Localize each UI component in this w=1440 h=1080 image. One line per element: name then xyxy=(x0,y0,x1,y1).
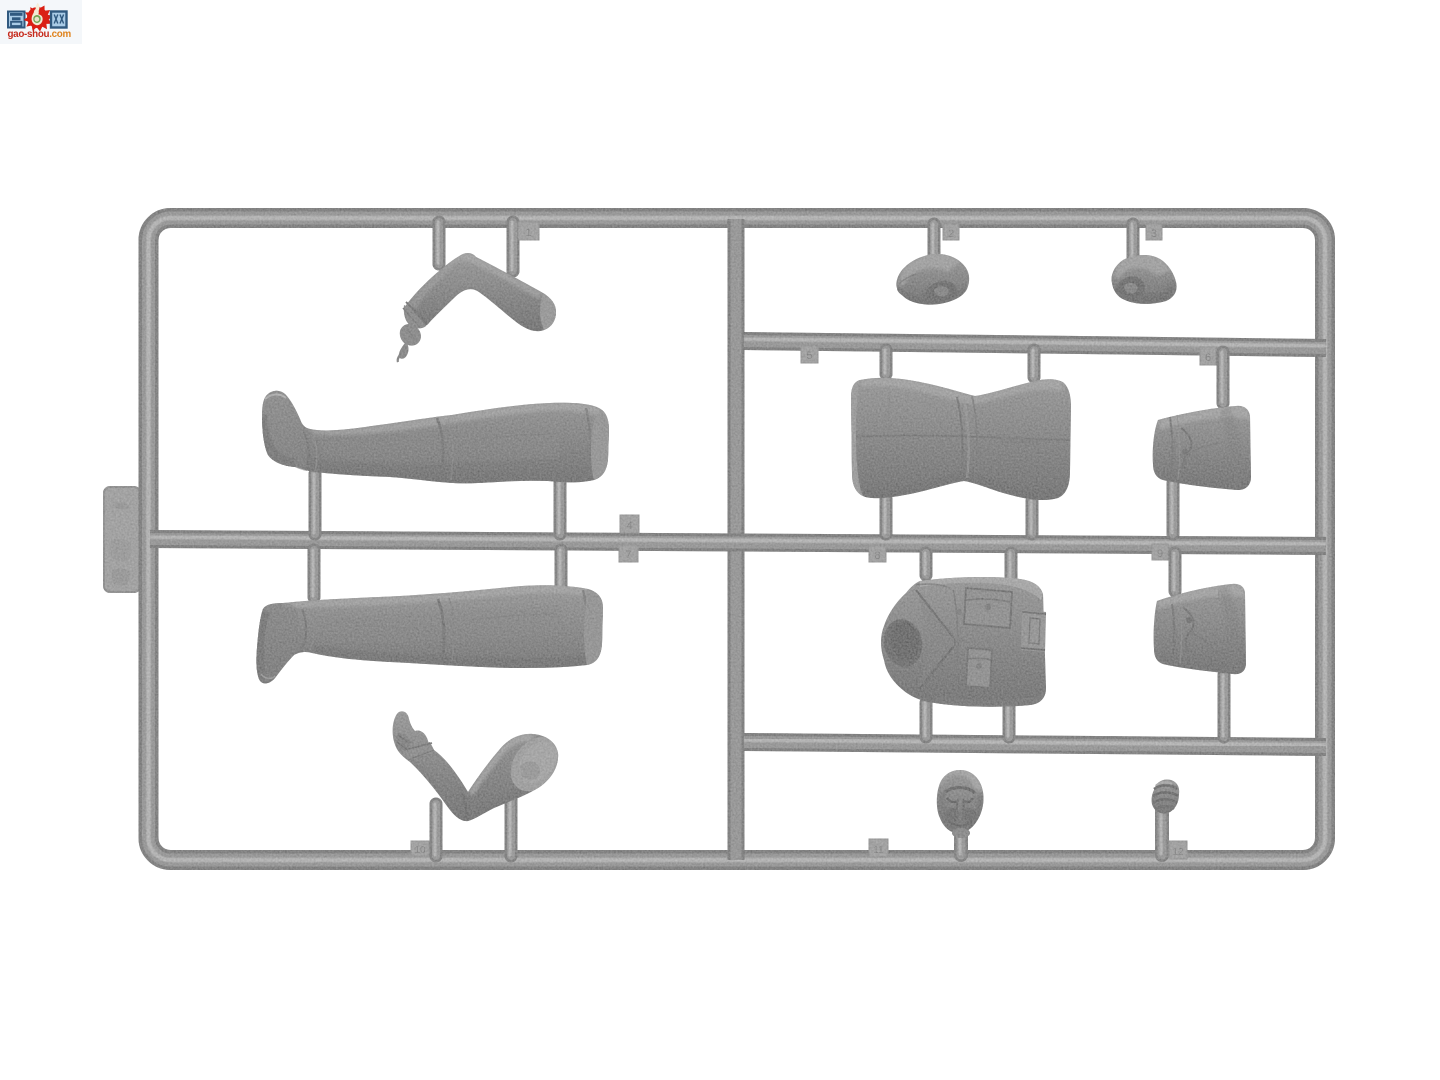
svg-text:12: 12 xyxy=(1172,847,1184,858)
svg-text:8: 8 xyxy=(874,550,880,562)
svg-text:6: 6 xyxy=(1205,352,1211,364)
svg-text:1: 1 xyxy=(525,227,531,239)
svg-text:2: 2 xyxy=(948,228,954,240)
svg-text:4: 4 xyxy=(626,520,632,532)
svg-text:7: 7 xyxy=(625,549,631,561)
svg-text:10: 10 xyxy=(414,845,426,856)
svg-text:3: 3 xyxy=(1151,228,1157,240)
svg-text:5: 5 xyxy=(806,350,812,362)
svg-text:9: 9 xyxy=(1157,548,1163,560)
svg-text:11: 11 xyxy=(873,845,884,856)
svg-text:gao-shou.com: gao-shou.com xyxy=(8,29,72,40)
